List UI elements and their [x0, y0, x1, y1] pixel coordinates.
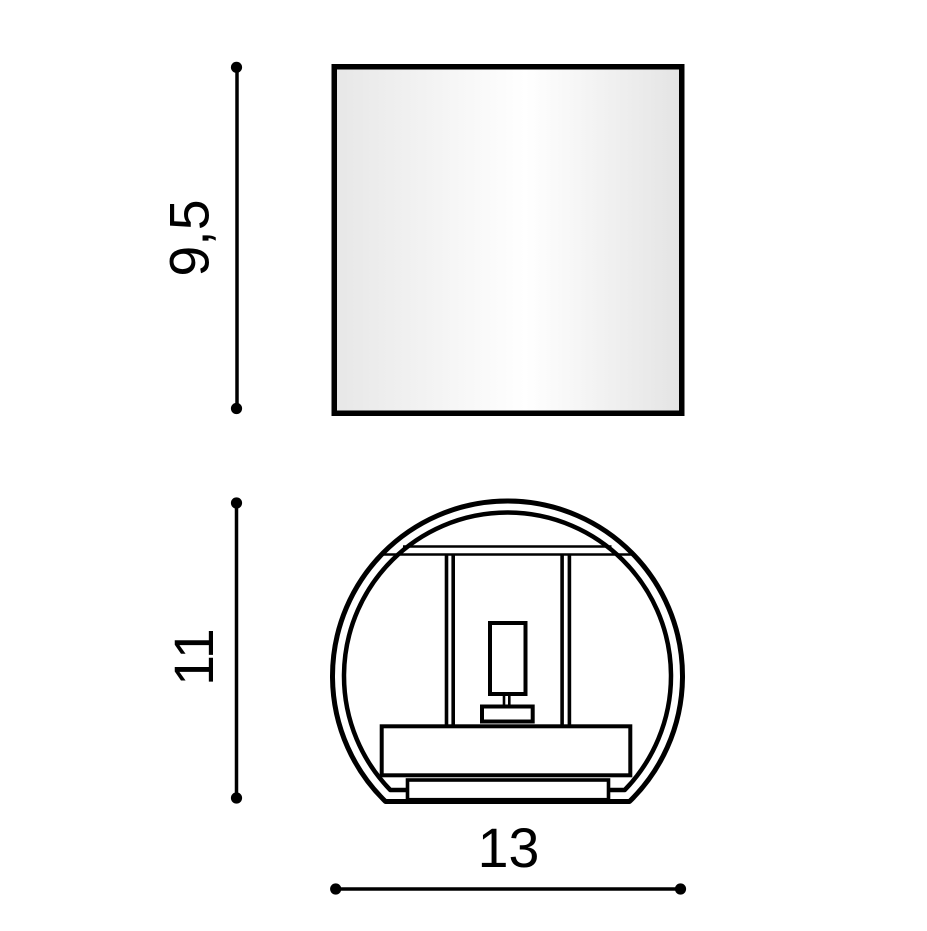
svg-text:13: 13: [478, 817, 540, 879]
svg-text:9,5: 9,5: [159, 199, 221, 276]
svg-text:11: 11: [163, 628, 225, 686]
